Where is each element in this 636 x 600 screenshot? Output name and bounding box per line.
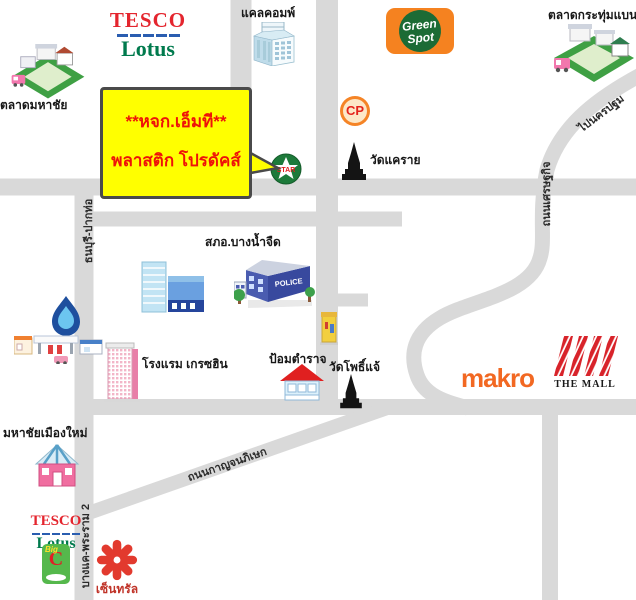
road-label-thonburi-paktho: ธนบุรี-ปากท่อ: [79, 199, 97, 263]
central-text: เซ็นทรัล: [94, 580, 140, 599]
pink-house-icon: [30, 440, 84, 492]
callout-line2: พลาสติก โปรดัคส์: [103, 147, 249, 174]
market-mahachai-icon: [6, 44, 90, 104]
big-c-oval: [46, 574, 66, 581]
office-building-icon: [246, 22, 300, 66]
calcomp-label: แคลคอมพ์: [241, 4, 295, 23]
tesco-lotus-logo-top: TESCO Lotus: [98, 10, 198, 60]
wat-khae-rai-label: วัดแคราย: [370, 151, 421, 170]
central-flower-logo: [94, 538, 140, 582]
callout-line1: **หจก.เอ็มที**: [103, 108, 249, 135]
wat-pho-chae-temple-icon: [337, 374, 365, 410]
big-c-logo: Big C: [42, 544, 70, 584]
road-label-setthakit: ถนนเศรษฐกิจ: [537, 162, 555, 227]
hotel-label: โรงแรม เกรซฮิน: [142, 355, 228, 374]
green-spot-logo: Green Spot: [386, 8, 454, 54]
talad-mahachai-label: ตลาดมหาชัย: [0, 96, 67, 115]
road-label-bangkhae-rama2: บางแค-พระราม 2: [76, 504, 94, 588]
hotel-building-icon: [104, 341, 140, 403]
police-station-icon: POLICE: [234, 250, 316, 314]
business-callout: **หจก.เอ็มที** พลาสติก โปรดัคส์: [100, 87, 252, 199]
green-spot-circle: Green Spot: [397, 8, 443, 54]
cp-logo: CP: [340, 96, 370, 126]
shrine-icon: [320, 308, 338, 346]
market-krathum-baen-icon: [552, 20, 636, 92]
wat-khae-rai-temple-icon: [340, 142, 368, 186]
blue-building-icon: [138, 260, 208, 318]
the-mall-logo-mark: [552, 334, 618, 378]
cp-text: CP: [343, 99, 367, 123]
map-canvas: TESCO Lotus แคลคอมพ์ Green Spot ตลาดกระท…: [0, 0, 636, 600]
big-c-script-text: Big: [45, 545, 58, 554]
tesco-wordmark: TESCO: [98, 10, 198, 31]
lotus-wordmark: Lotus: [98, 38, 198, 60]
makro-logo: makro: [461, 363, 534, 394]
the-mall-text: THE MALL: [552, 379, 618, 390]
ptt-gas-station-icon: [14, 294, 110, 364]
police-box-icon: [280, 364, 324, 404]
